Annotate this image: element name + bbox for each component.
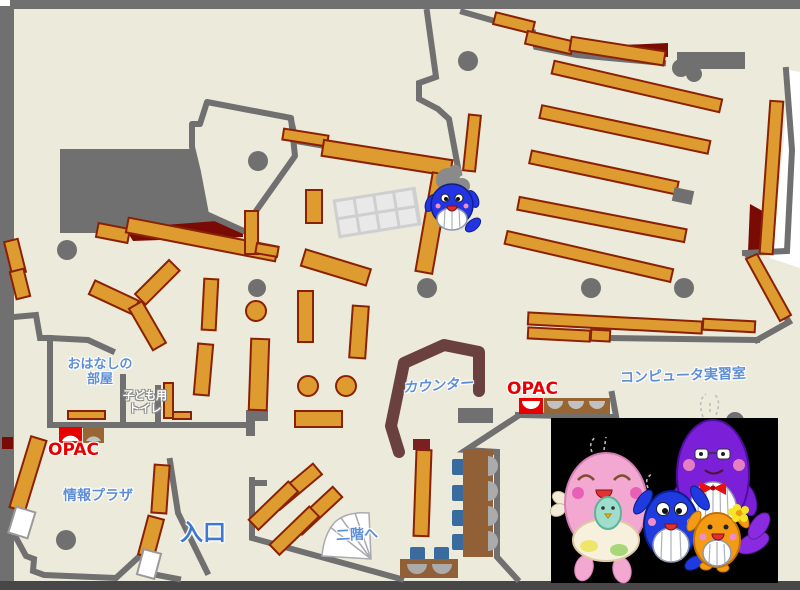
label-storytelling-line1: おはなしの bbox=[67, 357, 132, 372]
label-kids-toilet: 子ども用 トイレ bbox=[116, 390, 174, 415]
label-opac-center: OPAC bbox=[507, 380, 558, 400]
label-storytelling-room: おはなしの 部屋 bbox=[48, 358, 152, 388]
label-entrance: 入口 bbox=[180, 520, 226, 546]
label-info-plaza: 情報プラザ bbox=[52, 488, 144, 504]
label-kids-toilet-line2: トイレ bbox=[129, 402, 162, 415]
label-to-second-floor: 二階へ bbox=[336, 526, 379, 544]
mascot-photo bbox=[548, 394, 778, 585]
label-opac-left: OPAC bbox=[48, 441, 99, 461]
opac-station-center bbox=[519, 398, 610, 414]
label-storytelling-line2: 部屋 bbox=[87, 372, 113, 387]
library-floor-map: おはなしの 部屋 子ども用 トイレ OPAC 情報プラザ 入口 二階へ カウンタ… bbox=[0, 0, 800, 590]
label-kids-toilet-line1: 子ども用 bbox=[123, 389, 167, 402]
